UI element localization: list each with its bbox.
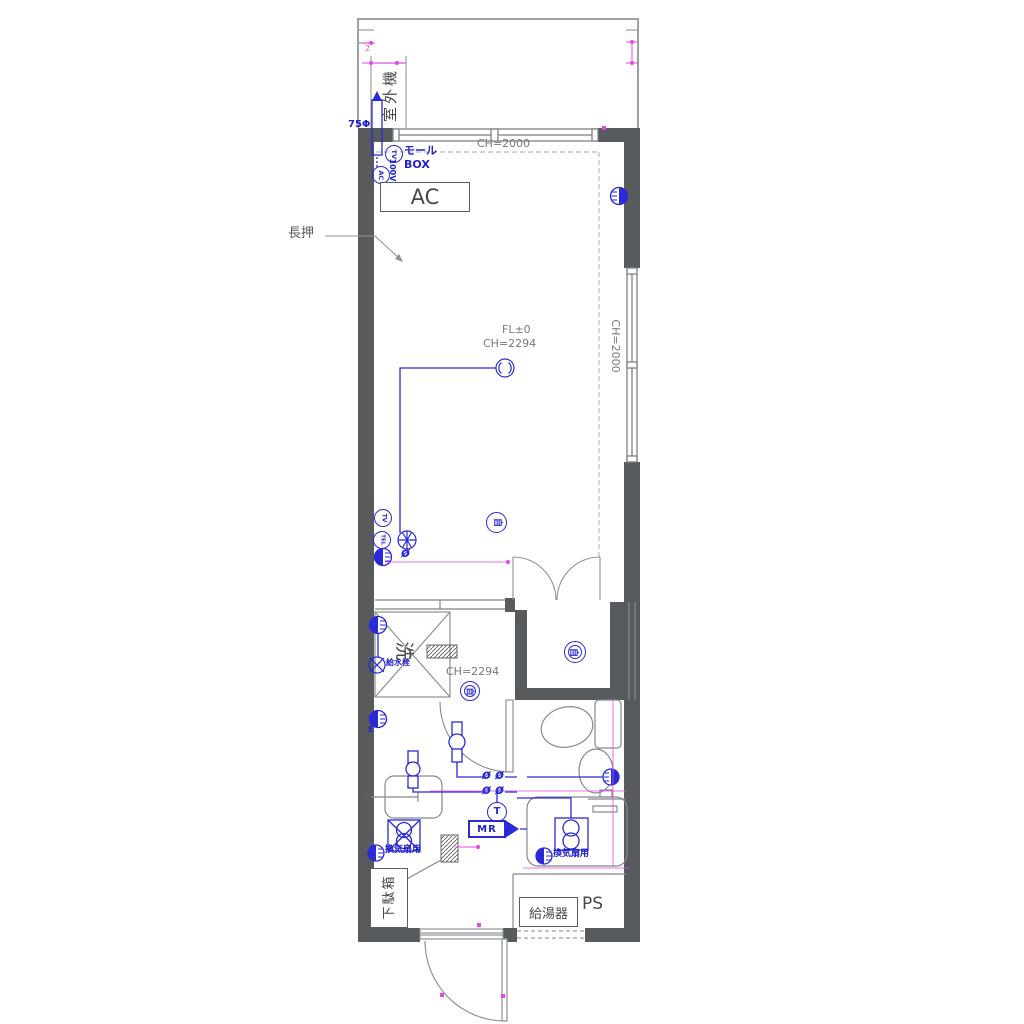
pipe-space-label: PS xyxy=(582,896,603,913)
plan-geometry xyxy=(0,0,1024,1024)
outdoor-unit-label: 室外機 xyxy=(380,56,400,134)
ac-unit-label: AC xyxy=(411,185,440,209)
bath-fan-icon xyxy=(555,818,588,850)
washlet-outlet-icon xyxy=(603,769,619,785)
fire-alarm-icon: 自 xyxy=(564,641,586,663)
faucet-knob-icon xyxy=(363,793,371,801)
phi-mark: ø xyxy=(495,784,504,797)
floor-plan: 室外機 2 75Φ TV AC モール BOX 100V CH=2000 AC … xyxy=(0,0,1024,1024)
fan-outlet-icon xyxy=(536,848,552,864)
fan-outlet-label-bath: 換気扇用 xyxy=(553,850,589,859)
earth-label: E xyxy=(368,726,373,734)
terminal-icon: T xyxy=(487,802,507,822)
tv-outlet-icon: TV xyxy=(374,509,392,527)
outdoor-unit-outline xyxy=(358,30,638,128)
voltage-label: 100V xyxy=(387,156,397,184)
outlet-icon xyxy=(611,188,628,205)
phi-mark: ø xyxy=(495,769,504,782)
fan-outlet-label-kitchen: 換気扇用 xyxy=(385,846,421,855)
dimension-text: 2 xyxy=(365,45,370,53)
phi-mark: ø xyxy=(482,784,491,797)
shoe-cabinet-label: 下駄箱 xyxy=(381,867,397,927)
interior-openings xyxy=(375,600,505,609)
water-tap-label: 給水栓 xyxy=(386,659,410,667)
ceiling-height-label-wash: CH=2294 xyxy=(446,666,499,677)
distribution-board-label: MR xyxy=(477,824,497,835)
entry-door xyxy=(420,929,507,1021)
outlet-icon xyxy=(375,549,392,566)
water-heater-box: 給湯器 xyxy=(519,897,578,927)
windows xyxy=(393,129,637,462)
ceiling-light-icon xyxy=(496,359,514,377)
distribution-board: MR xyxy=(468,820,506,838)
phi-mark: ø xyxy=(482,769,491,782)
fan-outlet-icon xyxy=(368,845,384,861)
pipe-diameter-label: 75Φ xyxy=(348,120,370,130)
closet-double-doors xyxy=(513,557,600,600)
tel-outlet-icon: TEL xyxy=(373,531,391,549)
balcony-outline xyxy=(358,19,638,128)
outlet-icon xyxy=(370,617,387,634)
ac-unit-box: AC xyxy=(380,182,470,212)
window-height-label-side: CH=2000 xyxy=(610,318,622,374)
ceiling-dashed-lines xyxy=(376,152,599,557)
mall-box-label-line1: モール xyxy=(404,145,437,156)
phi-mark: ø xyxy=(401,547,410,560)
ps-door-dashed xyxy=(517,931,585,938)
ceiling-height-label-main: CH=2294 xyxy=(483,338,536,349)
water-heater-label: 給湯器 xyxy=(529,903,568,922)
floor-level-label: FL±0 xyxy=(502,324,531,335)
fire-alarm-icon: 自 xyxy=(486,512,507,533)
mall-box-label-line2: BOX xyxy=(404,159,430,170)
switch-icon xyxy=(449,722,465,762)
board-arrow-icon xyxy=(505,820,519,838)
window-height-label-top: CH=2000 xyxy=(477,138,530,149)
switch-icon xyxy=(406,751,420,788)
fire-alarm-icon: 自 xyxy=(460,681,480,701)
nageshi-label: 長押 xyxy=(288,227,314,240)
